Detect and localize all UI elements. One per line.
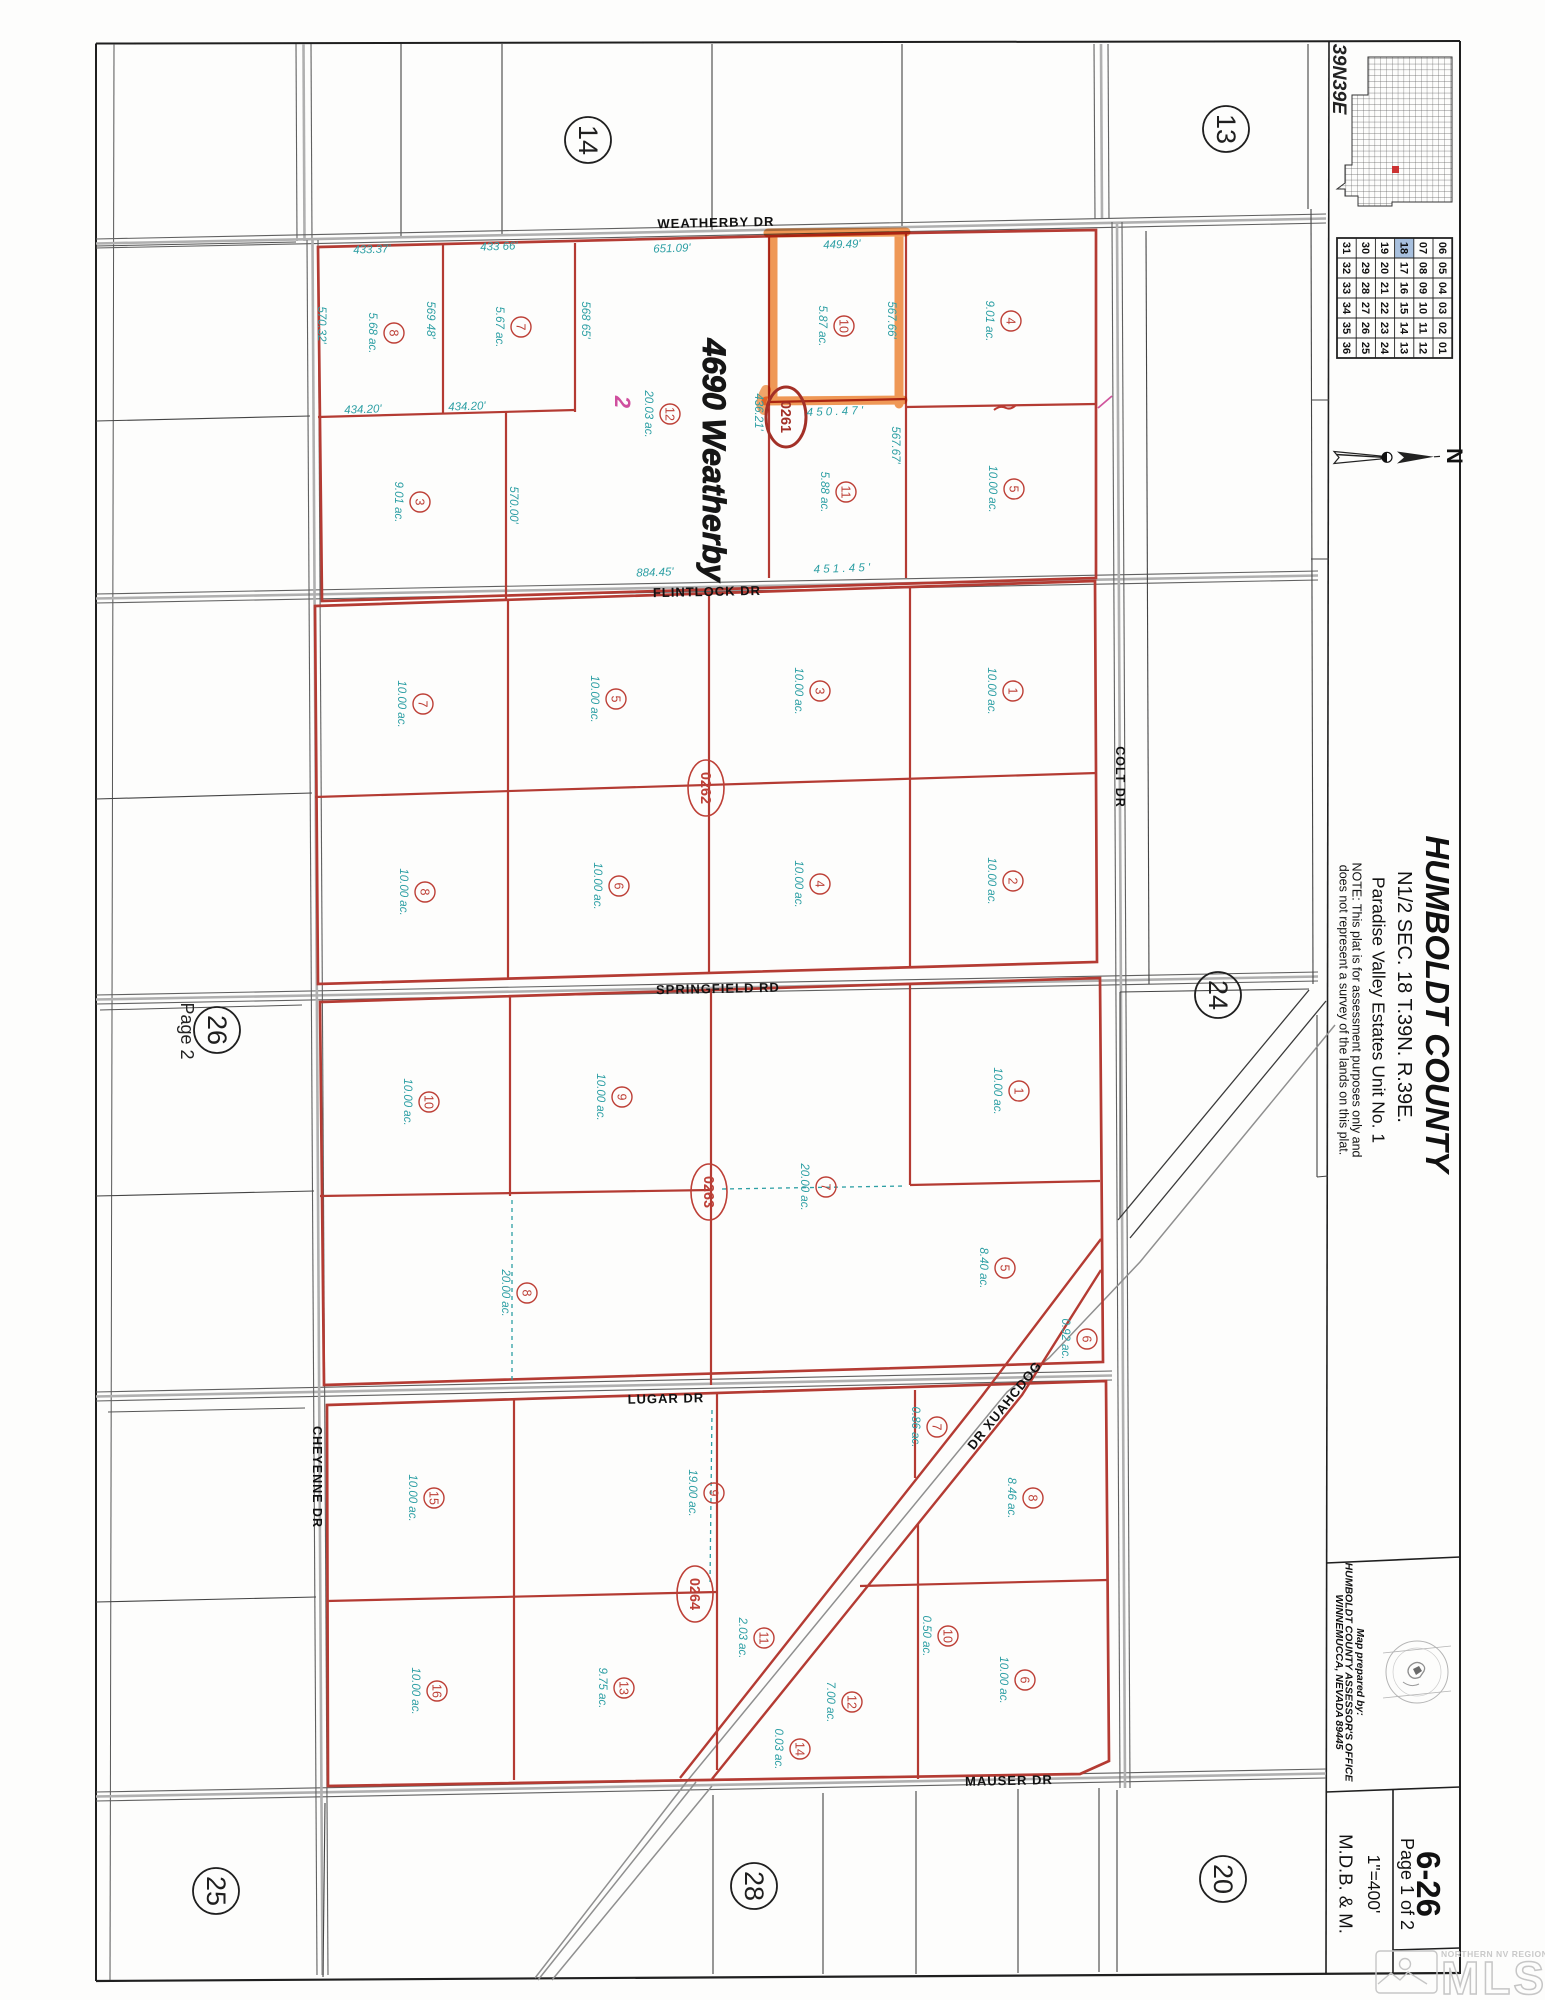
svg-text:06: 06 bbox=[1436, 242, 1448, 254]
svg-text:NOTE: This plat is for assessm: NOTE: This plat is for assessment purpos… bbox=[1350, 862, 1364, 1157]
svg-text:10.00 ac.: 10.00 ac. bbox=[395, 680, 407, 727]
svg-text:5: 5 bbox=[609, 696, 623, 703]
svg-text:2: 2 bbox=[610, 395, 635, 409]
svg-text:9.01 ac.: 9.01 ac. bbox=[392, 482, 404, 523]
svg-text:08: 08 bbox=[1417, 262, 1429, 274]
svg-text:7.00 ac.: 7.00 ac. bbox=[824, 1682, 836, 1723]
svg-text:14: 14 bbox=[1397, 322, 1409, 335]
svg-text:HUMBOLDT COUNTY: HUMBOLDT COUNTY bbox=[1419, 835, 1456, 1175]
svg-text:10.00 ac.: 10.00 ac. bbox=[792, 667, 804, 714]
svg-text:28: 28 bbox=[1359, 282, 1371, 294]
svg-text:5: 5 bbox=[1007, 486, 1021, 493]
svg-text:10: 10 bbox=[422, 1095, 436, 1109]
svg-text:567.67': 567.67' bbox=[889, 426, 901, 464]
svg-text:10.00 ac.: 10.00 ac. bbox=[406, 1474, 418, 1521]
svg-text:10.00 ac.: 10.00 ac. bbox=[594, 1073, 606, 1120]
svg-text:9: 9 bbox=[615, 1094, 629, 1101]
svg-text:0.86 ac.: 0.86 ac. bbox=[909, 1407, 921, 1448]
svg-text:433 66': 433 66' bbox=[480, 240, 519, 253]
svg-text:1: 1 bbox=[1006, 688, 1020, 695]
svg-text:26: 26 bbox=[202, 1015, 232, 1045]
svg-text:Page 2: Page 2 bbox=[177, 1002, 197, 1059]
svg-text:10.00 ac.: 10.00 ac. bbox=[792, 860, 804, 907]
svg-text:19.00 ac.: 19.00 ac. bbox=[686, 1469, 698, 1516]
svg-text:568 65': 568 65' bbox=[579, 301, 591, 339]
svg-text:20.00 ac.: 20.00 ac. bbox=[798, 1162, 810, 1210]
svg-text:10.00 ac.: 10.00 ac. bbox=[591, 862, 603, 909]
svg-text:33: 33 bbox=[1340, 282, 1352, 294]
svg-text:0263: 0263 bbox=[700, 1176, 716, 1208]
svg-text:434.20': 434.20' bbox=[448, 400, 487, 413]
svg-text:Map prepared by:: Map prepared by: bbox=[1354, 1628, 1366, 1716]
svg-text:15: 15 bbox=[1397, 302, 1409, 314]
svg-text:05: 05 bbox=[1436, 262, 1448, 274]
svg-text:NORTHERN NV REGIONAL: NORTHERN NV REGIONAL bbox=[1441, 1949, 1545, 1959]
svg-text:0261: 0261 bbox=[777, 401, 793, 433]
svg-text:35: 35 bbox=[1340, 322, 1352, 334]
svg-text:02: 02 bbox=[1436, 322, 1448, 334]
svg-text:10: 10 bbox=[941, 1629, 955, 1643]
svg-text:24: 24 bbox=[1203, 980, 1233, 1010]
svg-text:10.00 ac.: 10.00 ac. bbox=[985, 667, 997, 714]
svg-text:13: 13 bbox=[617, 1681, 631, 1695]
svg-text:24: 24 bbox=[1378, 342, 1390, 355]
svg-text:651.09': 651.09' bbox=[653, 242, 692, 255]
svg-text:12: 12 bbox=[845, 1695, 859, 1709]
svg-text:14: 14 bbox=[573, 125, 603, 155]
svg-text:4 5 0 . 4 7 ': 4 5 0 . 4 7 ' bbox=[806, 405, 864, 419]
svg-text:10.00 ac.: 10.00 ac. bbox=[985, 857, 997, 904]
svg-text:449.49': 449.49' bbox=[823, 238, 862, 251]
svg-text:04: 04 bbox=[1436, 282, 1448, 295]
svg-text:10.00 ac.: 10.00 ac. bbox=[409, 1667, 421, 1714]
svg-text:27: 27 bbox=[1359, 302, 1371, 314]
svg-text:11: 11 bbox=[1417, 322, 1429, 334]
svg-text:13: 13 bbox=[1211, 114, 1241, 144]
svg-text:M.D.B. & M.: M.D.B. & M. bbox=[1336, 1834, 1357, 1934]
svg-text:20.00 ac.: 20.00 ac. bbox=[499, 1268, 511, 1316]
svg-text:20.03 ac.: 20.03 ac. bbox=[642, 389, 654, 437]
svg-text:10.00 ac.: 10.00 ac. bbox=[986, 465, 998, 512]
svg-text:3: 3 bbox=[413, 499, 427, 506]
svg-text:MAUSER DR: MAUSER DR bbox=[965, 1772, 1053, 1789]
svg-text:CHEYENNE DR: CHEYENNE DR bbox=[310, 1426, 324, 1528]
svg-text:SPRINGFIELD RD: SPRINGFIELD RD bbox=[656, 980, 780, 998]
svg-text:433.37': 433.37' bbox=[353, 243, 392, 256]
svg-text:30: 30 bbox=[1359, 242, 1371, 254]
svg-text:10: 10 bbox=[1417, 302, 1429, 314]
svg-text:07: 07 bbox=[1417, 242, 1429, 254]
svg-text:569 48': 569 48' bbox=[424, 301, 436, 339]
svg-text:9.01 ac.: 9.01 ac. bbox=[983, 301, 995, 342]
svg-text:2.03 ac.: 2.03 ac. bbox=[736, 1617, 748, 1659]
svg-text:3: 3 bbox=[813, 688, 827, 695]
svg-text:8: 8 bbox=[418, 889, 432, 896]
svg-text:5: 5 bbox=[998, 1265, 1012, 1272]
svg-text:5.67 ac.: 5.67 ac. bbox=[493, 307, 505, 348]
svg-text:MLS: MLS bbox=[1441, 1952, 1545, 2000]
svg-text:31: 31 bbox=[1340, 242, 1352, 254]
svg-text:COLT DR: COLT DR bbox=[1113, 746, 1127, 808]
svg-text:7: 7 bbox=[514, 324, 528, 331]
svg-text:1: 1 bbox=[1012, 1088, 1026, 1095]
svg-text:N: N bbox=[1442, 448, 1467, 464]
svg-text:WEATHERBY DR: WEATHERBY DR bbox=[657, 214, 774, 231]
svg-text:4: 4 bbox=[813, 881, 827, 888]
svg-text:15: 15 bbox=[427, 1491, 441, 1505]
svg-text:36: 36 bbox=[1340, 342, 1352, 354]
svg-text:1"=400': 1"=400' bbox=[1364, 1855, 1384, 1914]
svg-text:884.45': 884.45' bbox=[636, 566, 675, 579]
svg-text:20: 20 bbox=[1378, 262, 1390, 274]
svg-text:10.00 ac.: 10.00 ac. bbox=[588, 675, 600, 722]
svg-text:03: 03 bbox=[1436, 302, 1448, 314]
svg-text:570.32': 570.32' bbox=[315, 306, 327, 344]
svg-text:8: 8 bbox=[387, 330, 401, 337]
svg-text:09: 09 bbox=[1417, 282, 1429, 294]
svg-text:20: 20 bbox=[1208, 1864, 1238, 1894]
svg-text:6: 6 bbox=[612, 883, 626, 890]
svg-text:9.75 ac.: 9.75 ac. bbox=[596, 1668, 608, 1709]
svg-text:16: 16 bbox=[430, 1684, 444, 1698]
svg-text:11: 11 bbox=[839, 486, 853, 499]
svg-text:0.50 ac.: 0.50 ac. bbox=[920, 1616, 932, 1657]
svg-text:8.46 ac.: 8.46 ac. bbox=[1005, 1478, 1017, 1519]
svg-text:01: 01 bbox=[1436, 342, 1448, 354]
svg-text:19: 19 bbox=[1378, 242, 1390, 254]
svg-text:4 5 1 . 4 5 ': 4 5 1 . 4 5 ' bbox=[813, 562, 871, 576]
svg-text:12: 12 bbox=[663, 407, 677, 421]
svg-text:does not represent a survey of: does not represent a survey of the lands… bbox=[1337, 865, 1351, 1155]
svg-text:21: 21 bbox=[1378, 282, 1390, 294]
svg-text:28: 28 bbox=[739, 1871, 769, 1901]
svg-text:10.00 ac.: 10.00 ac. bbox=[401, 1078, 413, 1125]
svg-text:23: 23 bbox=[1378, 322, 1390, 334]
svg-text:0262: 0262 bbox=[697, 772, 713, 804]
svg-text:25: 25 bbox=[1359, 342, 1371, 354]
svg-text:8: 8 bbox=[520, 1290, 534, 1297]
svg-text:434.20': 434.20' bbox=[344, 403, 383, 416]
svg-text:8.40 ac.: 8.40 ac. bbox=[977, 1248, 989, 1289]
svg-text:17: 17 bbox=[1397, 262, 1409, 274]
svg-text:5.87 ac.: 5.87 ac. bbox=[816, 306, 828, 347]
svg-text:12: 12 bbox=[1417, 342, 1429, 354]
svg-text:14: 14 bbox=[793, 1742, 807, 1756]
svg-text:10.00 ac.: 10.00 ac. bbox=[397, 868, 409, 915]
svg-text:9: 9 bbox=[707, 1490, 721, 1497]
svg-text:34: 34 bbox=[1340, 302, 1352, 315]
svg-text:0.03 ac.: 0.03 ac. bbox=[772, 1729, 784, 1770]
svg-text:6: 6 bbox=[1080, 1336, 1094, 1343]
svg-text:7: 7 bbox=[416, 701, 430, 708]
svg-text:13: 13 bbox=[1397, 342, 1409, 354]
svg-text:5.88 ac.: 5.88 ac. bbox=[818, 472, 830, 513]
svg-text:567.66': 567.66' bbox=[885, 301, 897, 339]
svg-text:LUGAR DR: LUGAR DR bbox=[627, 1390, 704, 1407]
svg-text:4: 4 bbox=[1004, 318, 1018, 325]
svg-text:29: 29 bbox=[1359, 262, 1371, 274]
svg-text:10.00 ac.: 10.00 ac. bbox=[991, 1067, 1003, 1114]
svg-text:10.00 ac.: 10.00 ac. bbox=[997, 1656, 1009, 1703]
svg-text:22: 22 bbox=[1378, 302, 1390, 314]
svg-text:8: 8 bbox=[1026, 1495, 1040, 1502]
svg-text:436.21': 436.21' bbox=[752, 393, 764, 431]
svg-text:32: 32 bbox=[1340, 262, 1352, 274]
svg-text:FLINTLOCK DR: FLINTLOCK DR bbox=[653, 583, 761, 600]
svg-text:4690 Weatherby: 4690 Weatherby bbox=[696, 337, 732, 583]
svg-text:0264: 0264 bbox=[686, 1578, 702, 1610]
svg-text:7: 7 bbox=[819, 1184, 833, 1191]
svg-text:WINNEMUCCA, NEVADA 89445: WINNEMUCCA, NEVADA 89445 bbox=[1333, 1594, 1345, 1749]
svg-text:5.68 ac.: 5.68 ac. bbox=[366, 313, 378, 354]
svg-text:18: 18 bbox=[1397, 242, 1409, 254]
svg-text:25: 25 bbox=[201, 1876, 231, 1906]
svg-text:570.00': 570.00' bbox=[507, 486, 519, 524]
svg-text:16: 16 bbox=[1397, 282, 1409, 294]
svg-text:6: 6 bbox=[1018, 1677, 1032, 1684]
svg-text:10: 10 bbox=[837, 319, 851, 333]
svg-text:Page 1 of 2: Page 1 of 2 bbox=[1397, 1838, 1417, 1930]
svg-text:7: 7 bbox=[930, 1424, 944, 1431]
svg-text:0.92 ac.: 0.92 ac. bbox=[1059, 1319, 1071, 1360]
svg-text:Paradise Valley Estates Unit N: Paradise Valley Estates Unit No. 1 bbox=[1369, 877, 1389, 1143]
svg-text:2: 2 bbox=[1006, 878, 1020, 885]
svg-text:N1/2 SEC. 18 T.39N. R.39E.: N1/2 SEC. 18 T.39N. R.39E. bbox=[1393, 871, 1415, 1123]
svg-text:39N39E: 39N39E bbox=[1328, 44, 1350, 115]
svg-text:26: 26 bbox=[1359, 322, 1371, 334]
svg-text:11: 11 bbox=[757, 1632, 771, 1645]
